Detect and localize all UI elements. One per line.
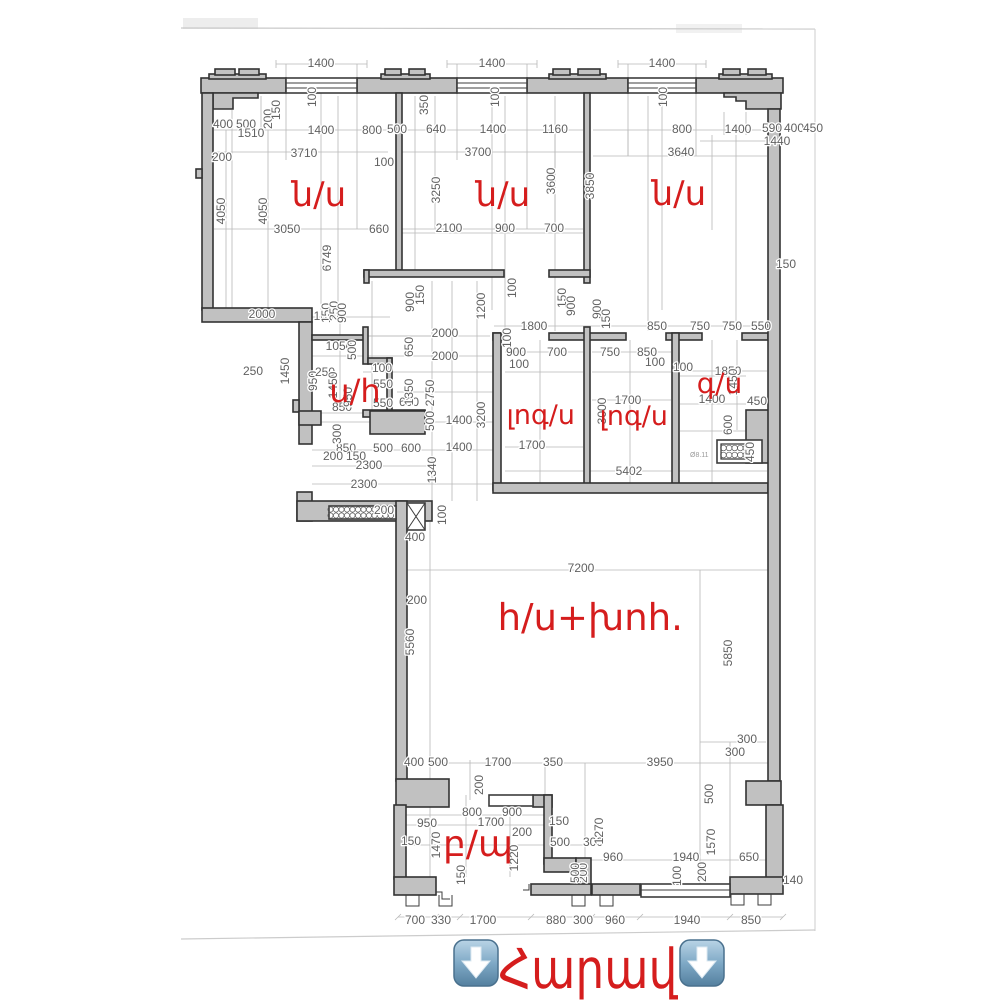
svg-text:4050: 4050	[256, 197, 270, 224]
svg-text:100: 100	[488, 87, 502, 107]
svg-text:1350: 1350	[402, 378, 416, 405]
svg-text:400: 400	[784, 121, 804, 135]
svg-text:300: 300	[725, 745, 745, 759]
svg-text:5560: 5560	[403, 628, 417, 655]
svg-text:1700: 1700	[470, 913, 497, 927]
svg-text:600: 600	[721, 415, 735, 435]
svg-text:4050: 4050	[214, 197, 228, 224]
svg-text:950: 950	[417, 816, 437, 830]
svg-text:2300: 2300	[351, 477, 378, 491]
svg-text:6749: 6749	[320, 244, 334, 271]
svg-text:450: 450	[743, 442, 757, 462]
svg-text:100: 100	[435, 505, 449, 525]
svg-text:600: 600	[401, 441, 421, 455]
svg-text:500: 500	[428, 755, 448, 769]
svg-text:100: 100	[673, 360, 693, 374]
svg-text:Ø8.11: Ø8.11	[690, 452, 709, 459]
svg-text:450: 450	[747, 394, 767, 408]
svg-text:200: 200	[512, 825, 532, 839]
svg-text:150: 150	[599, 309, 613, 329]
svg-text:1400: 1400	[308, 123, 335, 137]
svg-text:1340: 1340	[425, 456, 439, 483]
svg-text:100: 100	[374, 155, 394, 169]
svg-text:400: 400	[405, 530, 425, 544]
svg-text:350: 350	[417, 95, 431, 115]
svg-text:3700: 3700	[465, 145, 492, 159]
svg-text:500: 500	[345, 340, 359, 360]
svg-text:800: 800	[672, 122, 692, 136]
svg-text:100: 100	[372, 361, 392, 375]
svg-text:500: 500	[702, 784, 716, 804]
svg-text:2000: 2000	[432, 349, 459, 363]
svg-text:1700: 1700	[485, 755, 512, 769]
svg-text:400: 400	[213, 117, 233, 131]
svg-text:150: 150	[549, 814, 569, 828]
svg-text:590: 590	[762, 121, 782, 135]
svg-text:150: 150	[401, 834, 421, 848]
svg-text:450: 450	[803, 121, 823, 135]
svg-text:400: 400	[404, 755, 424, 769]
svg-text:900: 900	[335, 303, 349, 323]
svg-text:500: 500	[373, 441, 393, 455]
svg-text:850: 850	[647, 319, 667, 333]
svg-text:200: 200	[472, 775, 486, 795]
svg-text:1800: 1800	[521, 319, 548, 333]
svg-text:960: 960	[603, 850, 623, 864]
svg-text:1400: 1400	[446, 440, 473, 454]
svg-text:100: 100	[645, 355, 665, 369]
svg-text:200: 200	[212, 150, 232, 164]
svg-text:100: 100	[656, 87, 670, 107]
svg-text:700: 700	[547, 345, 567, 359]
svg-text:200: 200	[323, 449, 343, 463]
svg-text:1400: 1400	[308, 56, 335, 70]
svg-text:350: 350	[543, 755, 563, 769]
svg-text:300: 300	[737, 732, 757, 746]
svg-text:2000: 2000	[249, 307, 276, 321]
svg-text:2100: 2100	[436, 221, 463, 235]
svg-text:750: 750	[722, 319, 742, 333]
svg-text:640: 640	[426, 122, 446, 136]
svg-text:1200: 1200	[474, 292, 488, 319]
svg-text:1400: 1400	[446, 413, 473, 427]
svg-text:750: 750	[690, 319, 710, 333]
svg-text:850: 850	[741, 913, 761, 927]
svg-text:960: 960	[605, 913, 625, 927]
svg-text:100: 100	[509, 357, 529, 371]
svg-text:500: 500	[423, 411, 437, 431]
svg-text:550: 550	[751, 319, 771, 333]
svg-text:1470: 1470	[429, 831, 443, 858]
svg-text:1700: 1700	[519, 438, 546, 452]
svg-text:900: 900	[495, 221, 515, 235]
svg-text:150: 150	[454, 865, 468, 885]
svg-text:3600: 3600	[544, 167, 558, 194]
svg-text:150: 150	[776, 257, 796, 271]
svg-text:3200: 3200	[474, 401, 488, 428]
svg-text:1270: 1270	[592, 817, 606, 844]
svg-text:5402: 5402	[616, 464, 643, 478]
svg-text:650: 650	[739, 850, 759, 864]
svg-text:300: 300	[330, 424, 344, 444]
svg-text:1700: 1700	[478, 815, 505, 829]
svg-text:150: 150	[269, 100, 283, 120]
svg-text:1940: 1940	[673, 850, 700, 864]
svg-text:1570: 1570	[704, 828, 718, 855]
svg-text:1400: 1400	[480, 122, 507, 136]
svg-text:3050: 3050	[274, 222, 301, 236]
svg-text:3850: 3850	[583, 172, 597, 199]
svg-text:250: 250	[243, 364, 263, 378]
svg-text:1400: 1400	[725, 122, 752, 136]
svg-text:500: 500	[550, 835, 570, 849]
svg-text:500: 500	[568, 863, 582, 883]
svg-text:150: 150	[413, 285, 427, 305]
svg-text:3250: 3250	[429, 176, 443, 203]
svg-text:500: 500	[387, 122, 407, 136]
svg-text:140: 140	[783, 873, 803, 887]
svg-text:200: 200	[695, 862, 709, 882]
svg-text:1160: 1160	[542, 122, 568, 136]
svg-text:900: 900	[502, 805, 522, 819]
svg-text:200: 200	[407, 593, 427, 607]
svg-text:200: 200	[374, 503, 394, 517]
svg-text:750: 750	[600, 345, 620, 359]
svg-text:5850: 5850	[721, 639, 735, 666]
svg-text:7200: 7200	[568, 561, 595, 575]
svg-text:1400: 1400	[649, 56, 676, 70]
svg-text:1440: 1440	[764, 134, 791, 148]
svg-text:2750: 2750	[423, 379, 437, 406]
svg-text:1700: 1700	[615, 393, 642, 407]
svg-text:660: 660	[369, 222, 389, 236]
svg-text:1940: 1940	[674, 913, 701, 927]
svg-text:300: 300	[573, 913, 593, 927]
svg-text:330: 330	[431, 913, 451, 927]
svg-text:100: 100	[505, 278, 519, 298]
svg-text:3640: 3640	[668, 145, 695, 159]
svg-text:700: 700	[405, 913, 425, 927]
svg-text:1400: 1400	[699, 392, 726, 406]
svg-text:1450: 1450	[278, 357, 292, 384]
svg-text:800: 800	[362, 123, 382, 137]
svg-text:2000: 2000	[432, 326, 459, 340]
svg-text:700: 700	[544, 221, 564, 235]
svg-text:2300: 2300	[356, 458, 383, 472]
svg-text:3950: 3950	[647, 755, 674, 769]
svg-text:650: 650	[402, 337, 416, 357]
svg-text:880: 880	[546, 913, 566, 927]
svg-text:3710: 3710	[291, 146, 318, 160]
svg-text:1400: 1400	[479, 56, 506, 70]
svg-text:900: 900	[564, 296, 578, 316]
svg-text:100: 100	[670, 866, 684, 886]
svg-text:100: 100	[305, 87, 319, 107]
